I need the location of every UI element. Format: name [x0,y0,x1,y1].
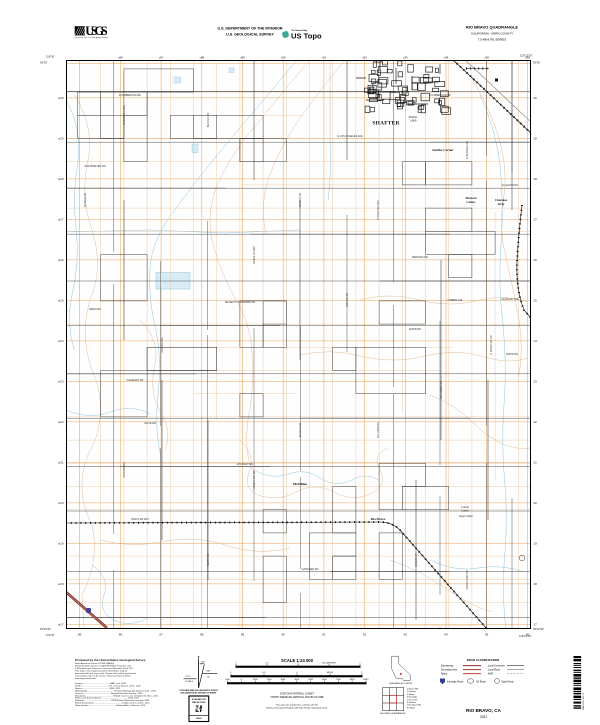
svg-text:489: 489 [240,56,245,60]
svg-text:KRATZMEYER RD: KRATZMEYER RD [84,165,105,168]
svg-text:HEATH RD: HEATH RD [207,554,210,567]
svg-text:18: 18 [534,582,538,586]
svg-text:14°: 14° [207,677,210,679]
svg-text:National Geospatial Program US: National Geospatial Program US Topo Prod… [266,707,328,710]
svg-text:26: 26 [534,258,538,262]
svg-text:JUMPER AVE: JUMPER AVE [161,337,164,353]
svg-text:0: 0 [296,672,298,674]
svg-text:4 Rosedale: 4 Rosedale [407,697,418,699]
svg-text:Other features ...............: Other features .........................… [75,704,146,707]
svg-text:3929: 3929 [58,137,64,141]
svg-text:OLIVE DR: OLIVE DR [144,422,156,425]
svg-text:25: 25 [534,299,538,303]
svg-text:Strip: Strip [498,202,505,206]
svg-text:35°22'30": 35°22'30" [40,627,51,631]
svg-text:MERCED AVE: MERCED AVE [412,256,429,259]
svg-text:119°30': 119°30' [46,633,55,637]
svg-text:SCAN ME FOR: SCAN ME FOR [192,698,207,701]
svg-text:3927: 3927 [58,218,64,222]
svg-text:ADJOINING QUADRANGLES: ADJOINING QUADRANGLES [380,712,406,715]
svg-text:Colony: Colony [466,200,476,204]
svg-text:SANTA FE WAY: SANTA FE WAY [253,246,256,264]
svg-text:COFFEE RD: COFFEE RD [346,293,349,308]
svg-text:35°30': 35°30' [40,61,48,65]
svg-text:86: 86 [119,633,123,637]
svg-text:0.5: 0.5 [263,672,267,674]
svg-text:U.S. DEPARTMENT OF THE INTERIO: U.S. DEPARTMENT OF THE INTERIOR [217,27,282,31]
svg-text:495: 495 [484,56,489,60]
svg-text:KIMBER AVE: KIMBER AVE [448,299,463,302]
svg-text:UTM GRID AND 2021 MAGNETIC NOR: UTM GRID AND 2021 MAGNETIC NORTH [179,689,218,692]
svg-text:23: 23 [534,380,538,384]
svg-text:SNOW RD: SNOW RD [506,353,518,356]
svg-text:SULLIVAN RD: SULLIVAN RD [377,422,380,438]
svg-text:REINA RD: REINA RD [89,308,101,311]
svg-text:92: 92 [363,633,367,637]
svg-text:491: 491 [322,56,327,60]
svg-text:science for a changing world: science for a changing world [75,36,109,39]
svg-text:Produced by the United States: Produced by the United States Geological… [75,658,146,662]
svg-text:E WHEELER RD: E WHEELER RD [490,335,493,354]
svg-text:494: 494 [444,56,449,60]
svg-text:QUADRANGLE LOCATION: QUADRANGLE LOCATION [389,682,413,685]
svg-text:91: 91 [322,633,326,637]
svg-text:State Route: State Route [502,681,515,684]
svg-text:3930: 3930 [58,96,64,100]
svg-text:Jasper Valley: Jasper Valley [459,515,473,518]
svg-text:3921: 3921 [58,461,64,465]
svg-text:0°51´: 0°51´ [186,675,192,678]
svg-text:3917: 3917 [58,623,64,627]
svg-text:488: 488 [200,56,205,60]
svg-text:Local Connector: Local Connector [488,665,505,668]
svg-text:492: 492 [362,56,367,60]
svg-text:N SHAFTER AVE: N SHAFTER AVE [377,200,380,220]
svg-text:24: 24 [534,339,538,343]
svg-text:8000: 8000 [350,679,355,681]
svg-text:E KIMBERLINA RD: E KIMBERLINA RD [119,94,141,97]
svg-text:entering private lands.: entering private lands. [75,677,97,680]
svg-text:1000: 1000 [253,679,258,681]
svg-text:ZERKER RD: ZERKER RD [299,193,302,208]
svg-text:21: 21 [534,461,538,465]
svg-text:7000: 7000 [336,679,341,681]
svg-text:Expressway: Expressway [441,665,454,668]
svg-text:20: 20 [534,501,538,505]
svg-text:17: 17 [534,623,538,627]
svg-text:N SHAFTER AVE: N SHAFTER AVE [123,105,126,125]
svg-text:E GALPIN RD: E GALPIN RD [502,184,518,187]
svg-text:27: 27 [534,218,538,222]
svg-text:490: 490 [281,56,286,60]
svg-text:0: 0 [241,679,243,681]
svg-text:496: 496 [525,56,530,60]
svg-text:Ramp: Ramp [441,674,448,676]
svg-text:1: 1 [359,663,361,665]
svg-text:RENFRO RD: RENFRO RD [123,462,126,477]
svg-text:McMillan: McMillan [293,482,307,486]
svg-text:35°30': 35°30' [533,61,541,65]
svg-text:3924: 3924 [58,339,64,343]
svg-text:ROAD CLASSIFICATION: ROAD CLASSIFICATION [467,658,499,662]
svg-text:3923: 3923 [58,380,64,384]
svg-text:Smiths Corner: Smiths Corner [432,148,454,152]
svg-text:487: 487 [159,56,164,60]
svg-text:FEET: FEET [363,679,369,681]
svg-text:ETCHART RD: ETCHART RD [237,463,253,466]
svg-text:USGS: USGS [196,718,202,720]
svg-text:GIBSON ST: GIBSON ST [415,553,418,567]
svg-text:5000: 5000 [308,679,313,681]
svg-text:3920: 3920 [58,501,64,505]
svg-text:RIO BRAVO QUADRANGLE: RIO BRAVO QUADRANGLE [466,25,518,30]
svg-text:MN: MN [207,671,211,673]
svg-text:88: 88 [200,633,204,637]
svg-text:90: 90 [282,633,286,637]
svg-text:89: 89 [241,633,245,637]
svg-text:KILOMETERS: KILOMETERS [322,663,336,665]
svg-text:28: 28 [534,177,538,181]
svg-text:7 Rio Bravo NE: 7 Rio Bravo NE [407,705,421,707]
svg-text:1 Wasco NE: 1 Wasco NE [407,689,419,691]
svg-text:SEVENTH STANDARD RD: SEVENTH STANDARD RD [225,301,256,304]
svg-text:Secondary Hwy: Secondary Hwy [441,669,458,672]
svg-text:3922: 3922 [58,420,64,424]
svg-text:35°22'30": 35°22'30" [533,627,544,631]
svg-text:30: 30 [534,96,538,100]
svg-text:486: 486 [118,56,123,60]
svg-text:ISBN 978-1-6817-9: ISBN 978-1-6817-9 [583,692,585,710]
svg-text:NORTH AMERICAN VERTICAL DATUM: NORTH AMERICAN VERTICAL DATUM OF 1988 [271,696,324,699]
svg-text:U.S. GEOLOGICAL SURVEY: U.S. GEOLOGICAL SURVEY [226,33,274,37]
svg-text:This map was produced to confo: This map was produced to conform with th… [276,704,319,707]
svg-text:E LOS ANGELES AVE: E LOS ANGELES AVE [337,135,362,138]
svg-text:8 Oildale: 8 Oildale [407,707,416,709]
svg-text:2000: 2000 [267,679,272,681]
svg-text:ZERKER RD: ZERKER RD [299,423,302,438]
svg-text:Local Road: Local Road [488,670,500,672]
svg-text:3918: 3918 [58,582,64,586]
svg-text:CORN CAMP RD: CORN CAMP RD [466,570,469,590]
svg-text:MAP ACCESS: MAP ACCESS [192,701,206,704]
svg-text:2 Famoso: 2 Famoso [407,691,417,693]
svg-text:FROEHLICH RD: FROEHLICH RD [253,470,256,489]
svg-text:SNOW RD: SNOW RD [409,328,421,331]
svg-text:94: 94 [444,633,448,637]
svg-text:22: 22 [534,420,538,424]
svg-text:1: 1 [361,672,363,674]
svg-text:Center: Center [461,510,469,513]
svg-text:GN: GN [201,662,205,664]
svg-text:ZERKER RD: ZERKER RD [84,193,87,208]
svg-text:BECKES RD: BECKES RD [207,113,210,128]
svg-text:Interstate Route: Interstate Route [447,681,464,684]
svg-text:119°30': 119°30' [46,55,55,59]
svg-text:3000: 3000 [281,679,286,681]
svg-text:US Topo: US Topo [291,31,322,40]
svg-text:15 MILS: 15 MILS [185,681,194,683]
svg-text:93: 93 [404,633,408,637]
svg-text:3919: 3919 [58,542,64,546]
svg-text:3926: 3926 [58,258,64,262]
svg-text:DECLINATION AT CENTER OF SHEET: DECLINATION AT CENTER OF SHEET [181,691,218,694]
svg-text:0.5: 0.5 [266,663,270,665]
svg-text:3928: 3928 [58,177,64,181]
svg-text:19: 19 [534,542,538,546]
svg-text:4000: 4000 [294,679,299,681]
svg-text:RIO BRAVO, CA: RIO BRAVO, CA [466,708,502,713]
svg-text:CALLOWAY DR: CALLOWAY DR [440,381,443,399]
svg-text:Rio Bravo: Rio Bravo [371,517,386,521]
svg-text:3925: 3925 [58,299,64,303]
svg-text:3 Wasco: 3 Wasco [407,694,416,696]
svg-text:96: 96 [526,633,530,637]
svg-text:29: 29 [534,137,538,141]
svg-text:95: 95 [485,633,489,637]
svg-text:493: 493 [403,56,408,60]
svg-text:CALIFORNIA - KERN COUNTY: CALIFORNIA - KERN COUNTY [471,32,513,36]
svg-text:SANTA FE WAY: SANTA FE WAY [131,518,149,521]
svg-text:6 Stevens: 6 Stevens [407,701,416,704]
svg-text:87: 87 [159,633,163,637]
svg-text:85: 85 [78,633,82,637]
svg-text:1: 1 [235,663,237,665]
svg-text:ZACHARY AVE: ZACHARY AVE [501,298,519,301]
svg-text:6000: 6000 [322,679,327,681]
svg-text:MILES: MILES [327,672,334,674]
svg-text:GARDNER RD: GARDNER RD [302,568,319,571]
svg-text:SHAFTER: SHAFTER [372,121,399,127]
svg-text:HAGEMAN RD: HAGEMAN RD [127,379,144,382]
svg-text:5 Oil Center: 5 Oil Center [407,698,418,701]
svg-text:1: 1 [230,672,232,674]
svg-text:E KIMBERLINA RD: E KIMBERLINA RD [429,94,451,97]
svg-text:4WD: 4WD [488,674,493,676]
svg-text:7.5-MINUTE SERIES: 7.5-MINUTE SERIES [478,38,507,42]
svg-text:US Route: US Route [476,681,487,684]
svg-text:2021: 2021 [480,715,487,719]
svg-text:CHEROKEE RD: CHEROKEE RD [466,141,469,160]
svg-text:1000: 1000 [225,679,230,681]
